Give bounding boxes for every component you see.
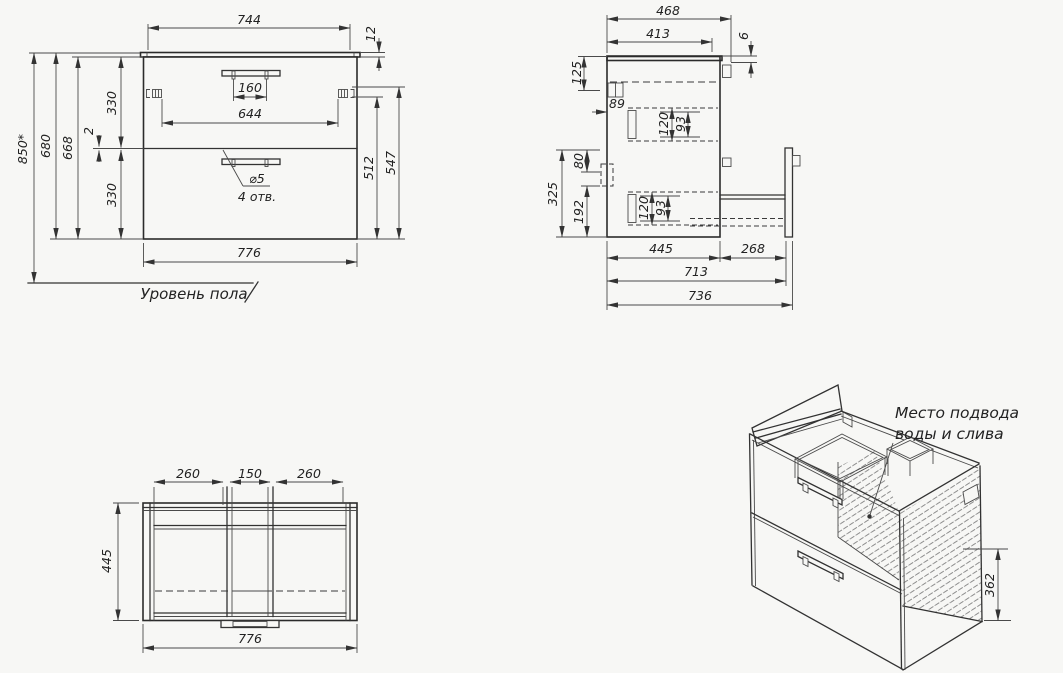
dim-right-547: 547 — [383, 151, 398, 175]
dim-plan-right-260: 260 — [297, 466, 321, 481]
side-view: 120 93 120 93 468 413 — [545, 3, 800, 310]
cabinet-plan-outline — [143, 503, 357, 621]
isometric-view: Место подвода воды и слива 362 — [750, 385, 1020, 670]
dim-slide-lower-120: 120 — [636, 196, 651, 220]
dim-countertop-thickness: 12 — [363, 26, 378, 42]
dim-water-zone-height: 362 — [982, 573, 997, 597]
back-bracket-top — [723, 65, 732, 78]
dim-right-512: 512 — [361, 156, 376, 180]
handle-plan — [221, 621, 279, 628]
hanging-bracket — [608, 83, 623, 97]
dim-slide-upper-120: 120 — [656, 112, 671, 136]
dim-slide-lower-93: 93 — [653, 200, 668, 216]
front-view: 744 12 160 644 330 2 330 668 680 850* — [15, 12, 405, 303]
dim-top-offset-125: 125 — [569, 61, 584, 85]
dim-plan-depth-445: 445 — [99, 549, 114, 573]
drawing-canvas: 744 12 160 644 330 2 330 668 680 850* — [0, 0, 1063, 673]
top-view: 260 150 260 445 776 — [99, 466, 357, 653]
note-hole-diameter: ⌀5 — [249, 171, 265, 186]
dim-body-height: 668 — [60, 136, 75, 160]
slide-bracket-upper — [628, 111, 636, 139]
dim-bracket-span: 644 — [238, 106, 262, 121]
dim-plan-left-260: 260 — [176, 466, 200, 481]
dim-front-bottom-width: 776 — [237, 245, 261, 260]
dim-front-top-width: 744 — [237, 12, 261, 27]
iso-lower-handle — [798, 551, 843, 582]
dim-depth-overall-top: 468 — [656, 3, 680, 18]
note-water-line2: воды и слива — [895, 425, 1004, 443]
dim-plan-width-776: 776 — [238, 631, 262, 646]
dim-left-80: 80 — [571, 153, 586, 169]
dim-bracket-89: 89 — [609, 96, 625, 111]
dim-depth-736: 736 — [688, 288, 712, 303]
dim-handle-holes: 160 — [238, 80, 262, 95]
floor-level-label: Уровень пола — [140, 285, 247, 303]
dim-slide-upper-93: 93 — [673, 116, 688, 132]
technical-drawing-sheet: 744 12 160 644 330 2 330 668 680 850* — [0, 0, 1063, 673]
iso-upper-handle — [798, 478, 842, 509]
dim-upper-drawer-height: 330 — [104, 91, 119, 115]
extended-drawer — [690, 148, 800, 237]
back-panel — [752, 385, 842, 446]
dim-left-192: 192 — [571, 200, 586, 224]
note-hole-count: 4 отв. — [238, 189, 276, 204]
dim-back-gap-6: 6 — [736, 32, 751, 40]
dim-depth-713: 713 — [684, 264, 708, 279]
dim-body-depth-445: 445 — [649, 241, 673, 256]
dim-left-325: 325 — [545, 182, 560, 206]
slide-bracket-lower — [628, 195, 636, 223]
dim-depth-413: 413 — [646, 26, 670, 41]
dim-total-height: 850* — [15, 134, 30, 164]
dim-drawer-gap: 2 — [81, 127, 96, 135]
note-water-line1: Место подвода — [895, 404, 1019, 422]
dim-plan-center-150: 150 — [238, 466, 262, 481]
dim-lower-drawer-height: 330 — [104, 183, 119, 207]
back-bracket-mid — [723, 158, 732, 167]
leader-dot — [867, 514, 871, 518]
dim-extension-268: 268 — [741, 241, 765, 256]
dim-height-with-top: 680 — [38, 134, 53, 158]
